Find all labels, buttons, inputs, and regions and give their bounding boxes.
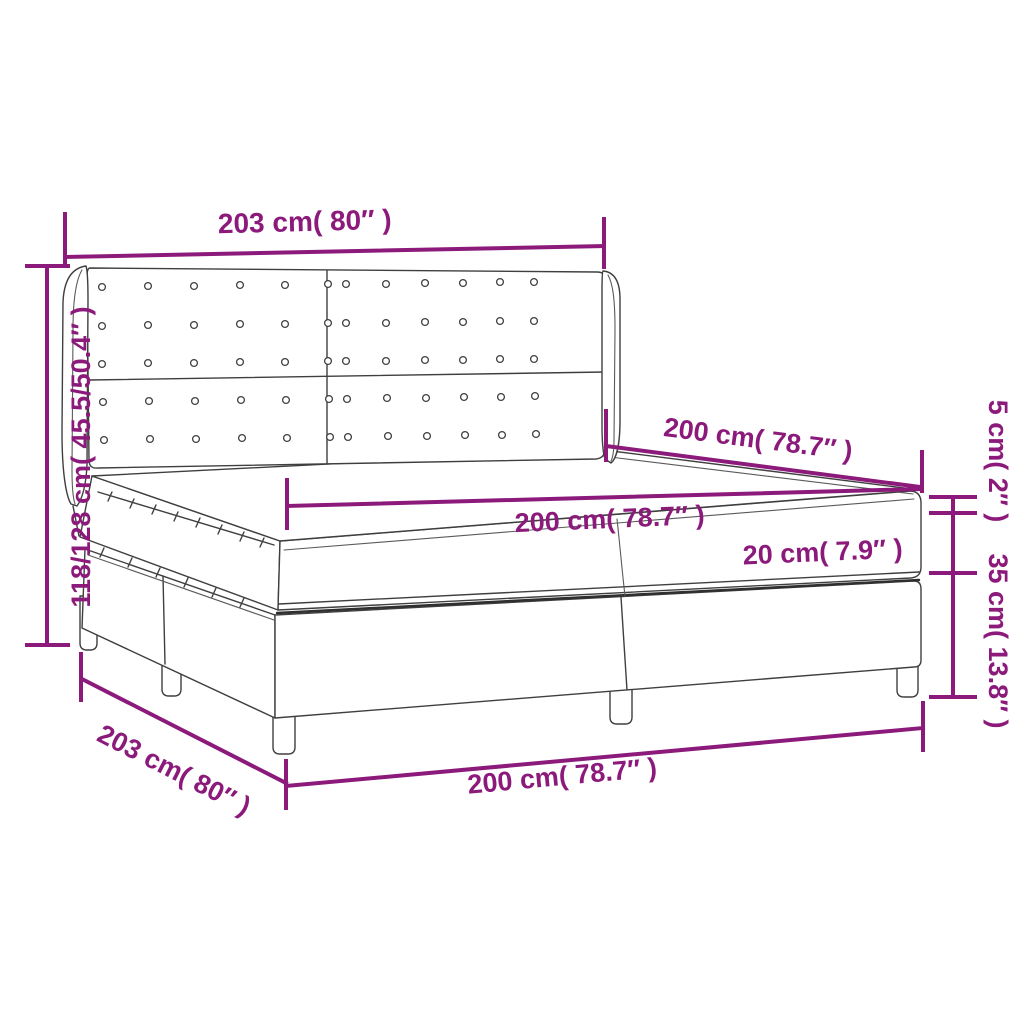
dimension-diagram: 203 cm( 80″ ) 118/128 cm( 45.5/50.4″ ) 2… <box>0 0 1024 1024</box>
bed-line-art-canvas: 203 cm( 80″ ) 118/128 cm( 45.5/50.4″ ) 2… <box>0 0 1024 1024</box>
dim-height-chain: 5 cm( 2″ ) 35 cm( 13.8″ ) <box>931 400 1013 729</box>
dim-base-width-label: 203 cm( 80″ ) <box>93 719 256 822</box>
dim-topper-thickness-label: 5 cm( 2″ ) <box>983 400 1013 522</box>
dim-base-height-label: 35 cm( 13.8″ ) <box>983 553 1013 728</box>
dim-headboard-width: 203 cm( 80″ ) <box>65 204 604 267</box>
bed-line-art <box>62 266 921 754</box>
dim-total-height-label: 118/128 cm( 45.5/50.4″ ) <box>66 306 96 607</box>
dim-total-height: 118/128 cm( 45.5/50.4″ ) <box>27 266 96 645</box>
dim-length-bottom: 200 cm( 78.7″ ) <box>286 703 923 808</box>
dim-headboard-width-label: 203 cm( 80″ ) <box>218 204 392 240</box>
